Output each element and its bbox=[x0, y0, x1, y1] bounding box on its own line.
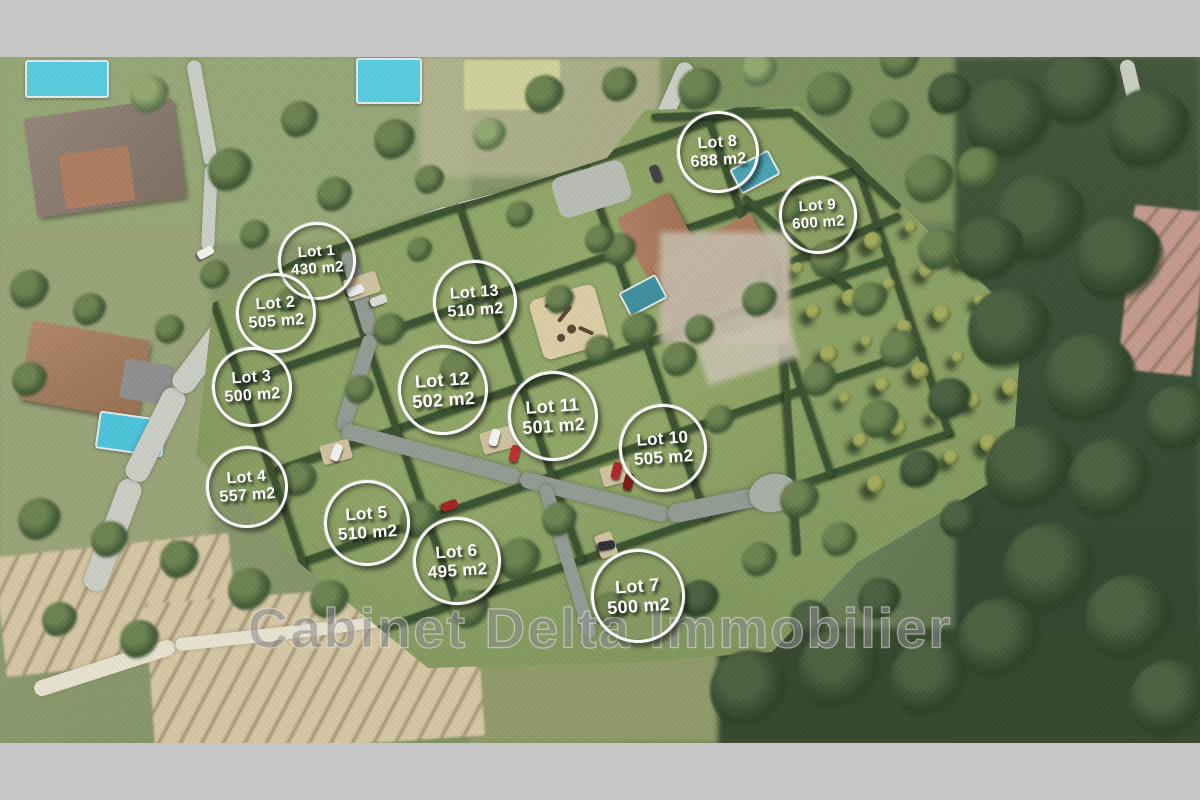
tree bbox=[622, 312, 658, 348]
lot-area: 688 m2 bbox=[690, 150, 747, 172]
tree bbox=[860, 400, 900, 440]
tree bbox=[900, 450, 940, 490]
tree bbox=[120, 620, 160, 660]
tree bbox=[373, 313, 407, 347]
lot-area: 510 m2 bbox=[337, 521, 398, 544]
aerial-photo bbox=[0, 0, 1200, 800]
house-roof bbox=[59, 145, 136, 209]
tree bbox=[12, 362, 48, 398]
tree bbox=[18, 498, 62, 542]
tree bbox=[42, 602, 78, 638]
tree bbox=[200, 260, 230, 290]
lot-area: 505 m2 bbox=[633, 446, 694, 469]
lot-area: 430 m2 bbox=[291, 259, 345, 279]
olive-tree bbox=[875, 377, 890, 392]
tree bbox=[780, 480, 820, 520]
tree bbox=[473, 118, 507, 152]
tree bbox=[407, 237, 433, 263]
lot-area: 495 m2 bbox=[427, 559, 488, 582]
tree bbox=[240, 220, 270, 250]
tree bbox=[822, 522, 858, 558]
olive-tree bbox=[883, 278, 895, 290]
tree bbox=[905, 155, 955, 205]
tree bbox=[317, 177, 353, 213]
lot-area: 502 m2 bbox=[412, 388, 476, 412]
tree bbox=[1108, 88, 1193, 173]
tree bbox=[1130, 660, 1200, 740]
tree bbox=[73, 293, 107, 327]
tree bbox=[1068, 438, 1153, 523]
tree bbox=[742, 52, 778, 88]
olive-tree bbox=[952, 351, 964, 363]
lot-area: 500 m2 bbox=[224, 385, 281, 407]
tree bbox=[208, 148, 253, 193]
tree bbox=[710, 650, 790, 730]
swimming-pool bbox=[356, 58, 422, 104]
tree bbox=[130, 75, 170, 115]
tree bbox=[91, 521, 129, 559]
lot-area: 500 m2 bbox=[607, 594, 671, 618]
tree bbox=[880, 330, 920, 370]
aerial-lot-plan: Cabinet Delta Immobilier Lot 1430 m2Lot … bbox=[0, 0, 1200, 800]
tree bbox=[415, 165, 445, 195]
olive-tree bbox=[864, 232, 882, 250]
tree bbox=[955, 215, 1025, 285]
tree bbox=[807, 72, 853, 118]
tree bbox=[958, 598, 1043, 683]
tree bbox=[506, 201, 534, 229]
tree bbox=[498, 538, 542, 582]
olive-tree bbox=[867, 475, 885, 493]
tree bbox=[742, 282, 778, 318]
tree bbox=[1043, 333, 1138, 428]
tree bbox=[542, 502, 578, 538]
tree bbox=[1075, 215, 1165, 305]
olive-tree bbox=[933, 305, 951, 323]
tree bbox=[662, 342, 698, 378]
tree bbox=[585, 225, 615, 255]
olive-tree bbox=[905, 221, 917, 233]
olive-tree bbox=[839, 392, 851, 404]
tree bbox=[940, 500, 980, 540]
olive-tree bbox=[806, 304, 821, 319]
tree bbox=[705, 405, 735, 435]
tree bbox=[281, 101, 319, 139]
tree bbox=[957, 147, 1003, 193]
letterbox-bottom bbox=[0, 743, 1200, 800]
tree bbox=[345, 375, 375, 405]
tree bbox=[585, 335, 615, 365]
olive-tree bbox=[861, 335, 873, 347]
olive-tree bbox=[792, 262, 804, 274]
tree bbox=[160, 540, 200, 580]
letterbox-top bbox=[0, 0, 1200, 57]
tree bbox=[685, 315, 715, 345]
tree bbox=[374, 119, 416, 161]
lot-area: 600 m2 bbox=[792, 213, 846, 233]
olive-tree bbox=[944, 450, 959, 465]
tree bbox=[802, 362, 838, 398]
tree bbox=[1040, 50, 1120, 130]
tree bbox=[852, 282, 888, 318]
lot-area: 510 m2 bbox=[447, 300, 504, 322]
tree bbox=[545, 285, 575, 315]
tree bbox=[10, 270, 50, 310]
tree bbox=[968, 288, 1053, 373]
tree bbox=[155, 315, 185, 345]
tree bbox=[525, 75, 565, 115]
lot-area: 501 m2 bbox=[522, 414, 586, 438]
tree bbox=[985, 425, 1075, 515]
tree bbox=[918, 228, 962, 272]
lot-area: 505 m2 bbox=[248, 311, 305, 333]
lot-area: 557 m2 bbox=[219, 485, 276, 507]
tree bbox=[602, 67, 638, 103]
tree bbox=[742, 542, 778, 578]
tree bbox=[678, 68, 722, 112]
swimming-pool bbox=[25, 60, 109, 98]
tree bbox=[1085, 575, 1175, 665]
tree bbox=[870, 100, 910, 140]
tree bbox=[928, 378, 972, 422]
